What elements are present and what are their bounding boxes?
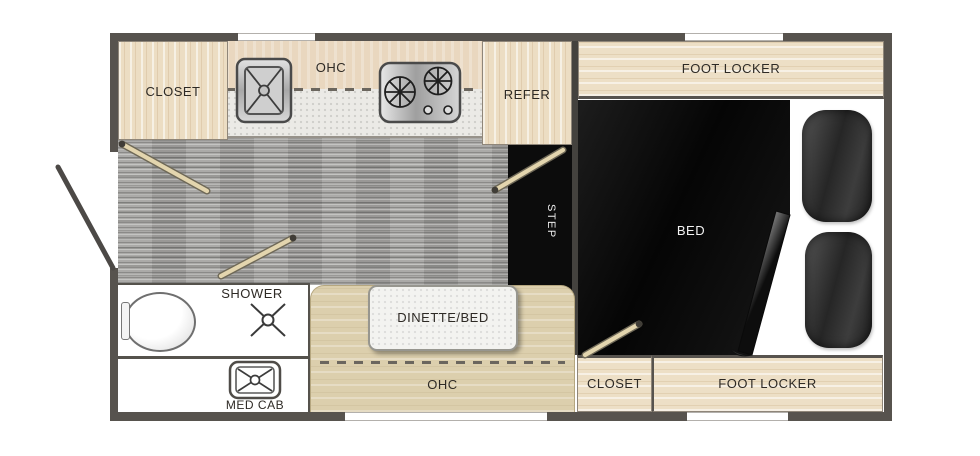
plan-overlay xyxy=(0,0,980,456)
cabinet-strut-icons xyxy=(119,141,643,355)
camper-floorplan: OHC STEP CLOSET REFER FOOT LOCKER BED SH… xyxy=(0,0,980,456)
entry-door-swing-icon xyxy=(58,167,113,268)
bed-blanket-fold xyxy=(728,211,790,356)
